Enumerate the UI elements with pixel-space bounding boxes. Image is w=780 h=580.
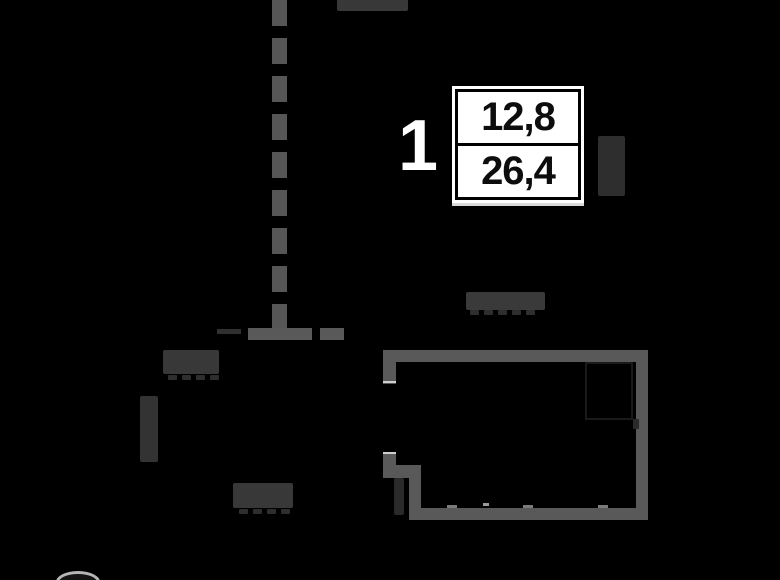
dimension-label-center-marks [470,310,535,315]
dimension-label-lower-left [233,483,293,508]
vertical-label-right-of-box [598,136,625,196]
room-wall-left-upper-stub [383,350,396,384]
right-wall-notch [633,419,639,429]
dimension-label-center [466,292,545,310]
dimension-label-upper-left-marks [168,375,219,380]
bottom-wall-tick-4 [598,505,608,508]
bottom-edge-ellipse [56,571,100,580]
opening-tick-lower [383,452,396,454]
room-wall-top [383,350,648,362]
opening-tick-upper [383,381,396,383]
dimension-label-upper-left [163,350,219,374]
unit-number: 1 [393,114,443,178]
room-wall-bottom [409,508,648,520]
dimension-label-top-cutoff [337,0,408,11]
dimension-label-lower-left-marks [239,509,290,514]
small-vertical-label-door [394,478,404,515]
area-info-box: 12,8 26,4 [452,86,584,203]
wall-segment-upper-b [320,328,344,340]
bottom-wall-tick-2 [483,503,489,506]
shaft-rectangle [585,362,633,420]
bottom-wall-tick-3 [523,505,533,508]
wall-segment-thin-left [217,329,241,334]
bottom-wall-tick-1 [447,505,457,508]
area-value-bottom: 26,4 [455,146,581,200]
floor-plan-canvas: 1 12,8 26,4 [0,0,780,580]
area-value-top: 12,8 [455,89,581,146]
room-wall-jog-vertical [409,472,421,520]
wall-segment-upper-a [248,328,312,340]
dashed-axis-line [272,0,287,334]
dimension-label-left-vertical [140,396,158,462]
room-wall-right [636,350,648,520]
